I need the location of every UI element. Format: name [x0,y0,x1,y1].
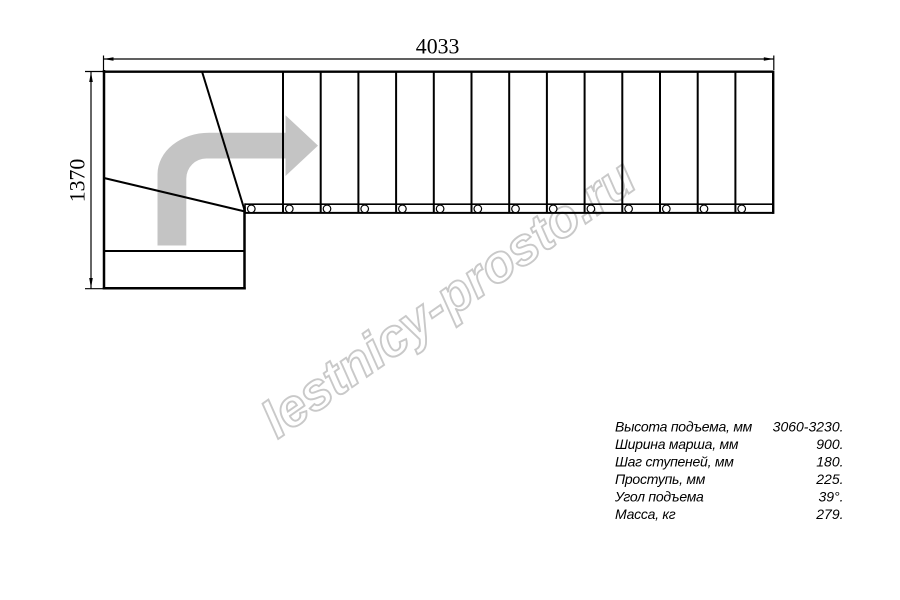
svg-text:3060-3230.: 3060-3230. [773,419,844,435]
svg-text:180.: 180. [816,454,843,470]
svg-text:225.: 225. [815,471,843,487]
svg-text:Ширина марша, мм: Ширина марша, мм [615,436,739,452]
svg-text:4033: 4033 [416,35,460,59]
svg-text:Высота подъема, мм: Высота подъема, мм [615,419,753,435]
svg-text:279.: 279. [815,506,843,522]
svg-text:Угол подъема: Угол подъема [614,489,704,505]
svg-text:lestnicy-prosto.ru: lestnicy-prosto.ru [251,148,646,449]
svg-text:1370: 1370 [66,159,90,203]
svg-text:Проступь, мм: Проступь, мм [615,471,706,487]
svg-text:Масса, кг: Масса, кг [615,506,676,522]
svg-text:39°.: 39°. [818,489,843,505]
svg-text:Шаг ступеней, мм: Шаг ступеней, мм [615,454,734,470]
svg-text:900.: 900. [816,436,843,452]
